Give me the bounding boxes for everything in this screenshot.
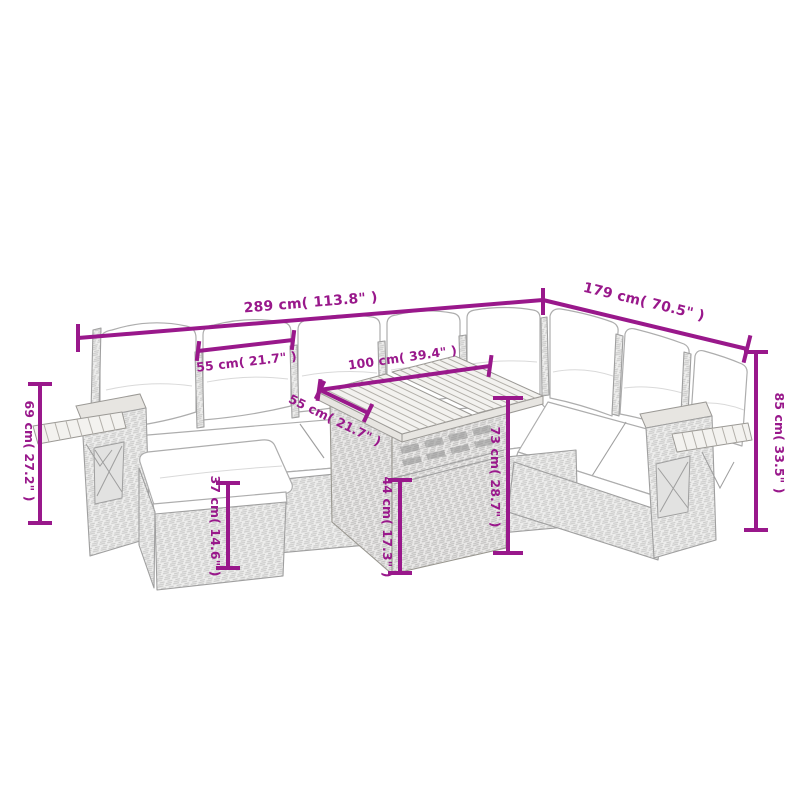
dimension-armrest-height: 69 cm( 27.2" )	[22, 384, 52, 523]
dimension-footstool-height-label: 37 cm( 14.6" )	[208, 475, 223, 576]
dimension-table-height-label: 73 cm( 28.7" )	[488, 426, 503, 527]
dimension-armrest-height-label: 69 cm( 27.2" )	[22, 400, 37, 501]
diagram-canvas: 289 cm( 113.8" ) 179 cm( 70.5" ) 85 cm( …	[0, 0, 800, 800]
dimension-backrest-height: 85 cm( 33.5" )	[744, 352, 787, 530]
dimension-backrest-height-label: 85 cm( 33.5" )	[772, 392, 787, 493]
right-armrest	[640, 402, 752, 558]
product-dimension-diagram: 289 cm( 113.8" ) 179 cm( 70.5" ) 85 cm( …	[0, 0, 800, 800]
dimension-total-width-label: 289 cm( 113.8" )	[243, 290, 378, 317]
dimension-table-shelf-height-label: 44 cm( 17.3" )	[380, 476, 395, 577]
left-armrest	[33, 394, 150, 556]
